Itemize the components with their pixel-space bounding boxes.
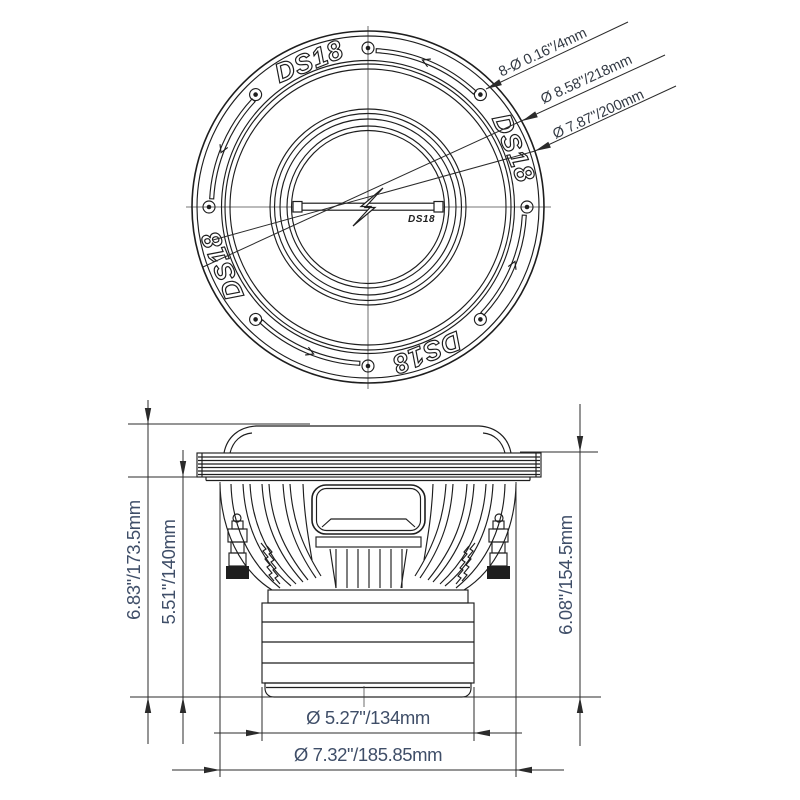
dim-label-basket-diameter: Ø 7.32"/185.85mm <box>294 744 442 765</box>
side-view <box>197 426 541 707</box>
mounting-hole <box>474 89 486 101</box>
dim-label-mounting-depth: 5.51"/140mm <box>158 519 179 624</box>
speaker-dimension-drawing: DS18 DS18 DS18 DS18 DS18 8-Ø 0.16"/4mm Ø… <box>0 0 800 800</box>
dim-label-magnet-diameter: Ø 5.27"/134mm <box>306 707 430 728</box>
rim-brand-logo: DS18 <box>195 227 250 305</box>
tinsel-leads <box>261 543 475 584</box>
center-brand-logo: DS18 <box>408 214 435 225</box>
mounting-flange <box>197 453 541 477</box>
mounting-hole <box>474 313 486 325</box>
rim-brand-logo: DS18 <box>486 109 541 187</box>
dim-total-height: 6.83"/173.5mm <box>123 400 310 744</box>
top-view: DS18 DS18 DS18 DS18 DS18 8-Ø 0.16"/4mm Ø… <box>186 22 676 389</box>
surround-dome <box>224 426 511 453</box>
mounting-hole <box>250 89 262 101</box>
dim-depth-below-flange: 6.08"/154.5mm <box>520 404 598 746</box>
rim-brand-logo: DS18 <box>270 34 348 89</box>
back-plate <box>265 683 471 707</box>
spider-and-slats <box>316 537 421 588</box>
rim-brand-logo: DS18 <box>388 325 466 380</box>
top-plate <box>268 590 468 603</box>
dim-label-total-height: 6.83"/173.5mm <box>123 500 144 620</box>
dim-label-depth-below-flange: 6.08"/154.5mm <box>555 515 576 635</box>
dim-magnet-diameter: Ø 5.27"/134mm <box>214 687 522 741</box>
mounting-hole <box>250 313 262 325</box>
cone-window <box>312 485 425 534</box>
magnet <box>262 603 474 683</box>
label-mounting-holes: 8-Ø 0.16"/4mm <box>496 25 589 80</box>
technical-drawing-page: DS18 DS18 DS18 DS18 DS18 8-Ø 0.16"/4mm Ø… <box>0 0 800 800</box>
